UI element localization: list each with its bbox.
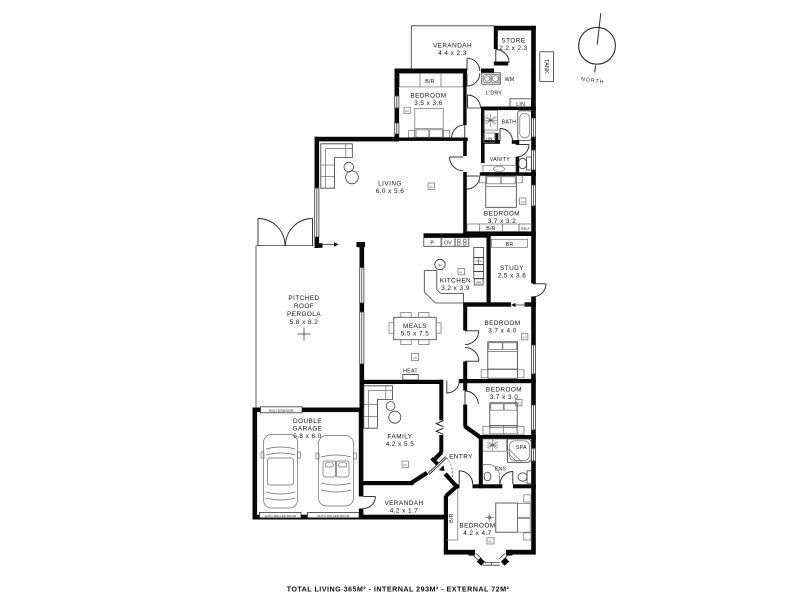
svg-text:DW: DW: [476, 281, 481, 285]
svg-text:SL: SL: [438, 263, 442, 267]
svg-text:B/R: B/R: [486, 226, 496, 232]
svg-text:BEDROOM: BEDROOM: [484, 320, 520, 327]
svg-text:3.2 x 3.9: 3.2 x 3.9: [441, 285, 470, 292]
svg-text:VERANDAH: VERANDAH: [433, 43, 472, 50]
svg-text:4.4 x 2.3: 4.4 x 2.3: [438, 50, 467, 57]
svg-text:MEALS: MEALS: [403, 323, 427, 330]
svg-text:ENS: ENS: [495, 467, 507, 473]
svg-text:5.8 x 6.0: 5.8 x 6.0: [293, 433, 322, 440]
svg-text:AUTO ROLLER DOOR: AUTO ROLLER DOOR: [264, 514, 295, 518]
svg-text:KITCHEN: KITCHEN: [440, 278, 471, 285]
svg-text:5.8 x 8.2: 5.8 x 8.2: [290, 319, 319, 326]
svg-text:FAMILY: FAMILY: [388, 434, 413, 441]
svg-text:PITCHED: PITCHED: [288, 295, 319, 302]
svg-text:ROLLERDOOR: ROLLERDOOR: [269, 409, 294, 413]
svg-text:BEDROOM: BEDROOM: [459, 523, 495, 530]
svg-text:BEDROOM: BEDROOM: [484, 211, 520, 218]
svg-text:OV: OV: [444, 241, 452, 247]
svg-text:4.2 x 1.7: 4.2 x 1.7: [390, 508, 419, 515]
svg-text:2.2 x 2.3: 2.2 x 2.3: [499, 45, 528, 52]
svg-text:B/R: B/R: [449, 513, 455, 523]
svg-text:TOTAL LIVING 365M² - INTERNAL: TOTAL LIVING 365M² - INTERNAL 293M² - EX…: [287, 585, 510, 594]
svg-text:STUDY: STUDY: [500, 265, 524, 272]
svg-text:SHELF: SHELF: [521, 226, 530, 230]
svg-text:BEDROOM: BEDROOM: [410, 93, 446, 100]
svg-text:2.5 x 3.6: 2.5 x 3.6: [498, 273, 527, 280]
svg-text:4.2 x 4.7: 4.2 x 4.7: [463, 530, 492, 537]
svg-text:6.0 x 5.6: 6.0 x 5.6: [376, 188, 405, 195]
svg-text:ENTRY: ENTRY: [449, 454, 473, 461]
svg-text:L'DRY: L'DRY: [486, 91, 502, 97]
svg-text:4.2 x 5.5: 4.2 x 5.5: [386, 441, 415, 448]
svg-text:VANITY: VANITY: [490, 157, 510, 163]
svg-text:3.7 x 3.0: 3.7 x 3.0: [490, 394, 519, 401]
svg-text:VERANDAH: VERANDAH: [384, 500, 423, 507]
svg-text:P: P: [430, 241, 434, 247]
svg-text:3.5 x 3.6: 3.5 x 3.6: [414, 100, 443, 107]
svg-text:3.7 x 4.0: 3.7 x 4.0: [488, 328, 517, 335]
svg-text:BR: BR: [506, 242, 514, 248]
svg-text:ROOF: ROOF: [294, 303, 314, 310]
svg-text:GARAGE: GARAGE: [292, 426, 322, 433]
svg-text:5.5 x 7.5: 5.5 x 7.5: [401, 331, 430, 338]
svg-text:STORE: STORE: [501, 38, 525, 45]
svg-text:B/R: B/R: [425, 79, 435, 85]
svg-text:SPA: SPA: [516, 445, 527, 451]
svg-text:DOUBLE: DOUBLE: [293, 418, 322, 425]
svg-text:WM: WM: [505, 77, 515, 83]
svg-text:HEAT: HEAT: [403, 369, 418, 375]
svg-text:AUTO ROLLER DOOR: AUTO ROLLER DOOR: [317, 514, 348, 518]
svg-text:BATH: BATH: [502, 120, 517, 126]
svg-text:BEDROOM: BEDROOM: [486, 387, 522, 394]
svg-text:LIVING: LIVING: [378, 181, 402, 188]
svg-text:TANK: TANK: [543, 59, 549, 74]
svg-text:LIN: LIN: [486, 136, 493, 141]
svg-text:PERGOLA: PERGOLA: [287, 311, 321, 318]
